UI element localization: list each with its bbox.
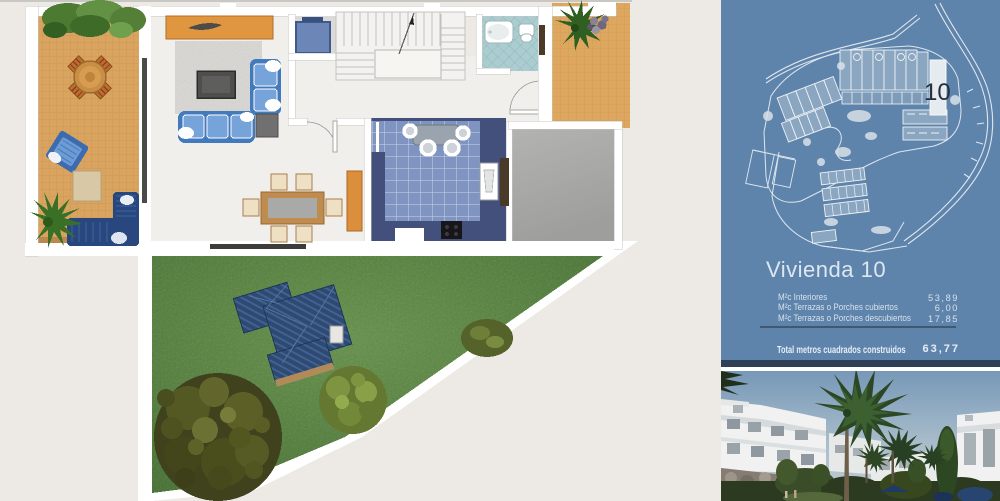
- svg-text:10: 10: [924, 79, 951, 106]
